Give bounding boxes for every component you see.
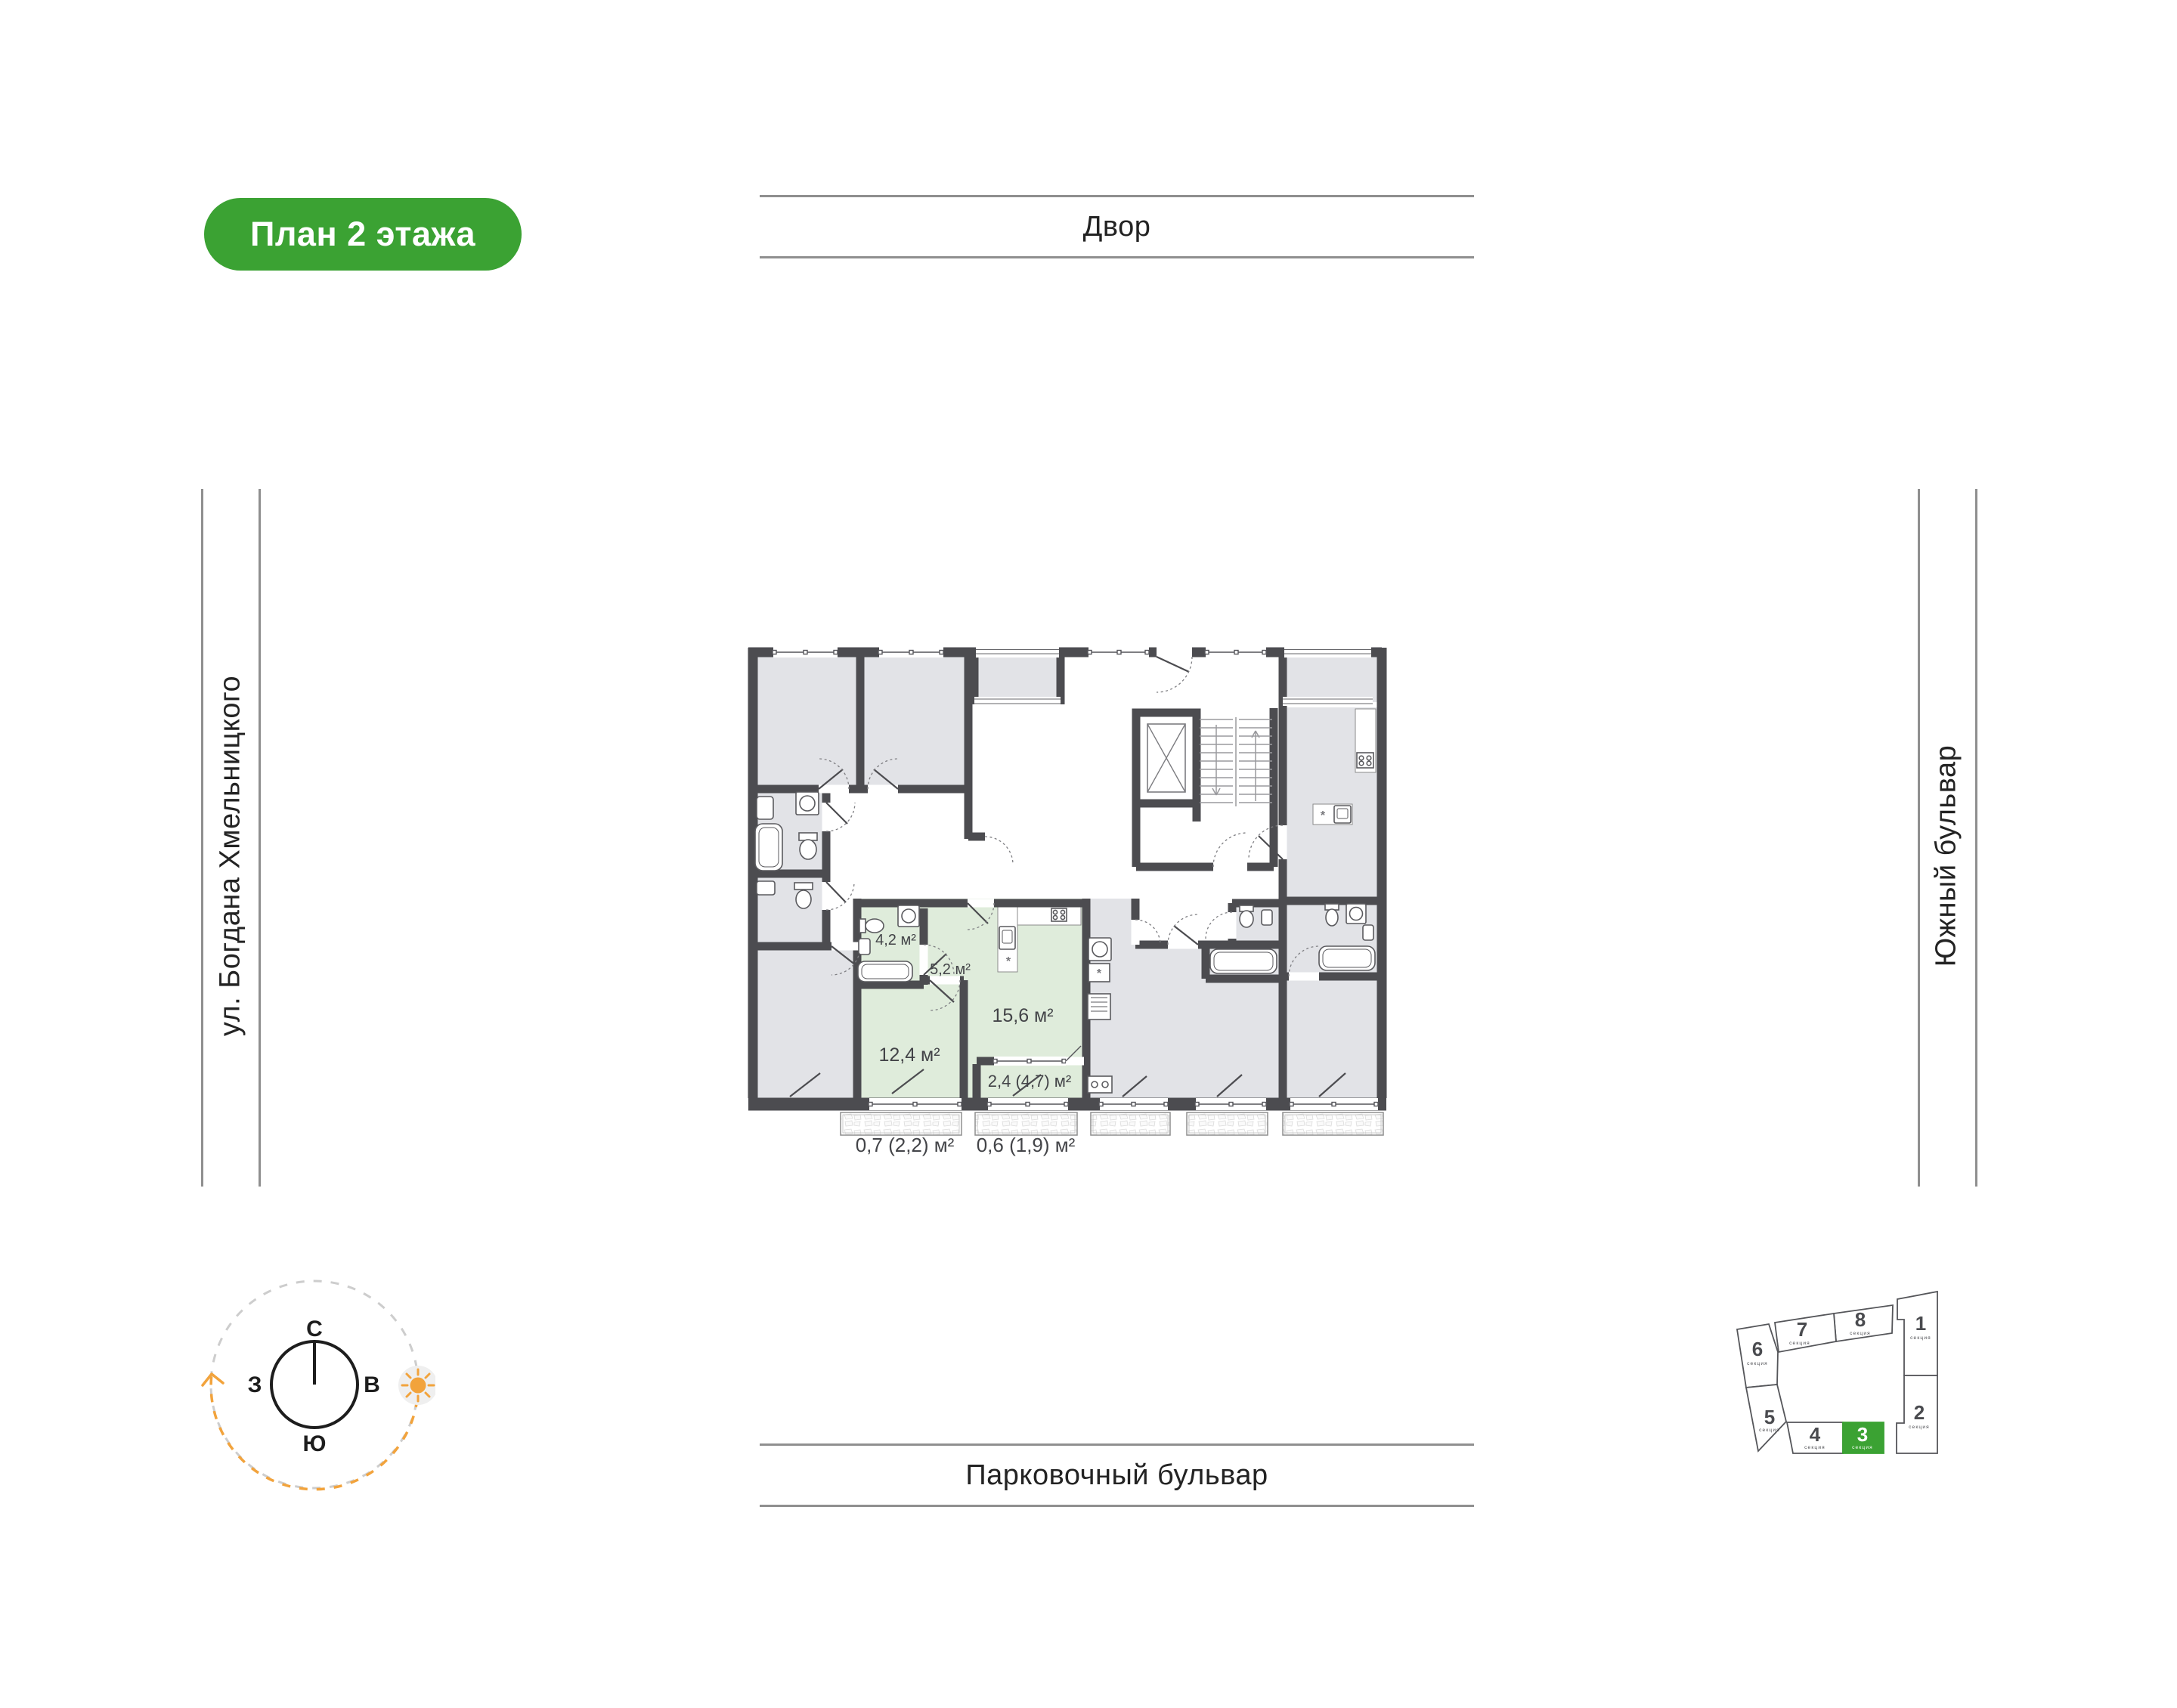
section-8-num: 8 — [1855, 1308, 1866, 1331]
section-4-num: 4 — [1810, 1423, 1821, 1446]
room-area-bedroom: 12,4 м² — [878, 1044, 940, 1066]
sink-icon — [1262, 910, 1272, 925]
section-6-word: секция — [1747, 1361, 1768, 1366]
room-area-bathroom: 4,2 м² — [875, 932, 916, 948]
stove-icon — [1357, 753, 1373, 768]
windows-bottom — [869, 1098, 1378, 1110]
sink-icon — [1363, 925, 1373, 940]
fridge-icon — [1088, 994, 1110, 1020]
sink-icon — [757, 797, 773, 819]
street-line-right-inner — [1918, 489, 1920, 1187]
compass-east: В — [364, 1372, 380, 1397]
elevator — [1136, 713, 1197, 803]
compass-west: З — [248, 1372, 262, 1397]
street-line-left-outer — [201, 489, 203, 1187]
floor-plan-page: План 2 этажа Двор Парковочный бульвар ул… — [0, 0, 2177, 1708]
stove-icon — [1088, 1076, 1112, 1093]
balcony-area-2: 0,6 (1,9) м² — [977, 1134, 1076, 1156]
kitchen-sink-icon — [999, 927, 1015, 949]
floor-plan: * * * 4,2 м² 5,2 м² 15,6 м² 12,4 м² 2,4 … — [745, 644, 1395, 1173]
street-line-right-outer — [1975, 489, 1977, 1187]
floor-badge: План 2 этажа — [204, 198, 522, 271]
section-7-num: 7 — [1797, 1318, 1807, 1341]
sink-icon — [859, 939, 870, 955]
svg-text:*: * — [1097, 967, 1102, 980]
street-label-bottom: Парковочный бульвар — [760, 1443, 1474, 1507]
section-2-word: секция — [1909, 1425, 1930, 1430]
section-5-num: 5 — [1764, 1406, 1775, 1428]
room-area-kitchen-living: 15,6 м² — [992, 1005, 1053, 1026]
compass-south: Ю — [303, 1431, 327, 1456]
section-8-word: секция — [1850, 1331, 1871, 1336]
street-label-left: ул. Богдана Хмельницкого — [215, 630, 247, 1083]
balconies — [841, 1112, 1383, 1135]
section-1-word: секция — [1910, 1335, 1931, 1341]
site-map: 1 секция 2 секция 3 секция 4 секция 5 се… — [1728, 1282, 1955, 1463]
section-3-num: 3 — [1857, 1423, 1868, 1446]
compass-north: С — [306, 1317, 323, 1341]
street-line-left-inner — [259, 489, 261, 1187]
room-area-loggia: 2,4 (4,7) м² — [988, 1072, 1072, 1091]
room-area-hallway: 5,2 м² — [930, 961, 971, 978]
section-5-word: секция — [1759, 1428, 1780, 1433]
section-3-word: секция — [1852, 1445, 1873, 1450]
sun-path-arrow — [203, 1374, 223, 1385]
section-1-num: 1 — [1915, 1312, 1926, 1335]
section-6-num: 6 — [1752, 1338, 1763, 1360]
sun-icon — [398, 1366, 435, 1405]
compass: С В Ю З — [194, 1262, 435, 1504]
sink-icon — [757, 881, 775, 895]
street-label-right: Южный бульвар — [1931, 630, 1963, 1083]
street-label-top: Двор — [760, 195, 1474, 258]
section-4-word: секция — [1804, 1445, 1826, 1450]
highlighted-apartment[interactable] — [857, 899, 1086, 1098]
section-7-word: секция — [1789, 1341, 1810, 1346]
section-2-num: 2 — [1914, 1401, 1925, 1424]
svg-text:*: * — [1321, 809, 1326, 822]
toilet-icon — [859, 919, 866, 933]
toilet-icon — [794, 883, 813, 890]
svg-text:*: * — [1006, 955, 1011, 968]
stove-icon — [1051, 908, 1067, 921]
kitchen-sink-icon — [1334, 806, 1351, 823]
balcony-area-1: 0,7 (2,2) м² — [856, 1134, 955, 1156]
